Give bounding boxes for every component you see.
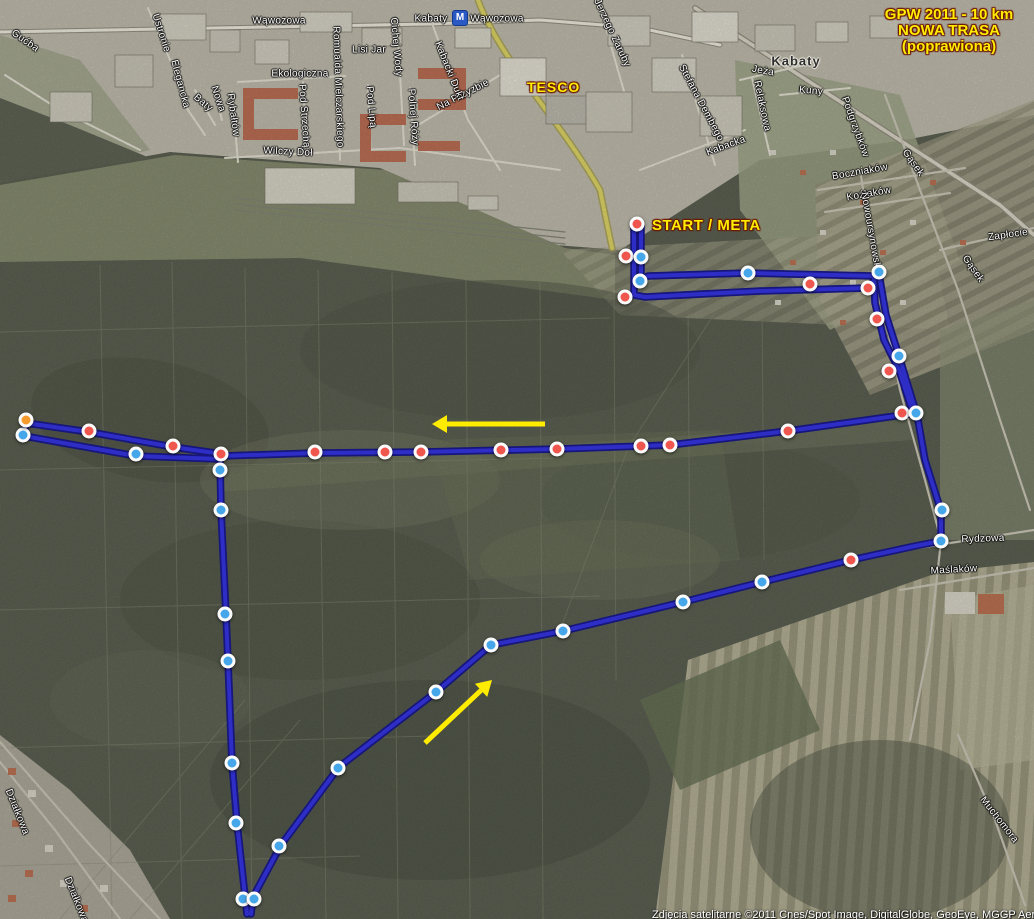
route-waypoint-marker-blue[interactable] xyxy=(214,503,229,518)
route-waypoint-marker-blue[interactable] xyxy=(218,607,233,622)
route-waypoint-marker-blue[interactable] xyxy=(741,266,756,281)
route-waypoint-marker-red[interactable] xyxy=(82,424,97,439)
satellite-map[interactable]: GućbaUstronieEleganckaBatyNowaRybałtówWą… xyxy=(0,0,1034,919)
route-waypoint-marker-red[interactable] xyxy=(378,445,393,460)
route-waypoint-marker-red[interactable] xyxy=(634,439,649,454)
route-waypoint-marker-blue[interactable] xyxy=(676,595,691,610)
route-waypoint-marker-red[interactable] xyxy=(895,406,910,421)
race-title: GPW 2011 - 10 km NOWA TRASA (poprawiona) xyxy=(866,7,1032,55)
route-waypoint-marker-red[interactable] xyxy=(781,424,796,439)
route-waypoint-marker-red[interactable] xyxy=(861,281,876,296)
route-waypoint-marker-red[interactable] xyxy=(663,438,678,453)
route-waypoint-marker-red[interactable] xyxy=(803,277,818,292)
route-waypoint-marker-red[interactable] xyxy=(618,290,633,305)
route-waypoint-marker-red[interactable] xyxy=(630,217,645,232)
route-waypoint-marker-blue[interactable] xyxy=(909,406,924,421)
route-waypoint-marker-red[interactable] xyxy=(166,439,181,454)
route-waypoint-marker-blue[interactable] xyxy=(634,250,649,265)
tesco-label: TESCO xyxy=(527,79,580,95)
race-title-line1: GPW 2011 - 10 km xyxy=(866,7,1032,23)
route-waypoint-marker-blue[interactable] xyxy=(556,624,571,639)
route-waypoint-marker-blue[interactable] xyxy=(633,274,648,289)
route-waypoint-marker-blue[interactable] xyxy=(755,575,770,590)
route-waypoint-marker-blue[interactable] xyxy=(892,349,907,364)
route-waypoint-marker-blue[interactable] xyxy=(272,839,287,854)
route-waypoint-marker-red[interactable] xyxy=(414,445,429,460)
imagery-copyright: Zdjęcia satelitarne ©2011 Cnes/Spot Imag… xyxy=(652,909,1034,919)
start-meta-label: START / META xyxy=(652,217,761,234)
route-waypoint-marker-blue[interactable] xyxy=(331,761,346,776)
route-waypoint-marker-red[interactable] xyxy=(308,445,323,460)
route-waypoint-marker-blue[interactable] xyxy=(429,685,444,700)
route-waypoint-marker-red[interactable] xyxy=(844,553,859,568)
route-waypoint-marker-blue[interactable] xyxy=(16,428,31,443)
route-waypoint-marker-blue[interactable] xyxy=(247,892,262,907)
race-title-line2: NOWA TRASA xyxy=(866,23,1032,39)
route-waypoint-marker-red[interactable] xyxy=(619,249,634,264)
route-waypoint-marker-blue[interactable] xyxy=(934,534,949,549)
route-waypoint-marker-red[interactable] xyxy=(550,442,565,457)
route-waypoint-marker-red[interactable] xyxy=(494,443,509,458)
route-waypoint-marker-blue[interactable] xyxy=(225,756,240,771)
route-waypoint-marker-blue[interactable] xyxy=(229,816,244,831)
route-waypoint-marker-blue[interactable] xyxy=(484,638,499,653)
route-waypoint-marker-blue[interactable] xyxy=(213,463,228,478)
route-waypoint-marker-red[interactable] xyxy=(214,447,229,462)
route-waypoint-marker-red[interactable] xyxy=(870,312,885,327)
route-waypoint-marker-blue[interactable] xyxy=(221,654,236,669)
route-waypoint-marker-red[interactable] xyxy=(882,364,897,379)
route-markers-layer xyxy=(0,0,1034,919)
race-title-line3: (poprawiona) xyxy=(866,39,1032,55)
route-waypoint-marker-blue[interactable] xyxy=(935,503,950,518)
route-waypoint-marker-blue[interactable] xyxy=(872,265,887,280)
route-waypoint-marker-orange[interactable] xyxy=(19,413,34,428)
route-waypoint-marker-blue[interactable] xyxy=(129,447,144,462)
